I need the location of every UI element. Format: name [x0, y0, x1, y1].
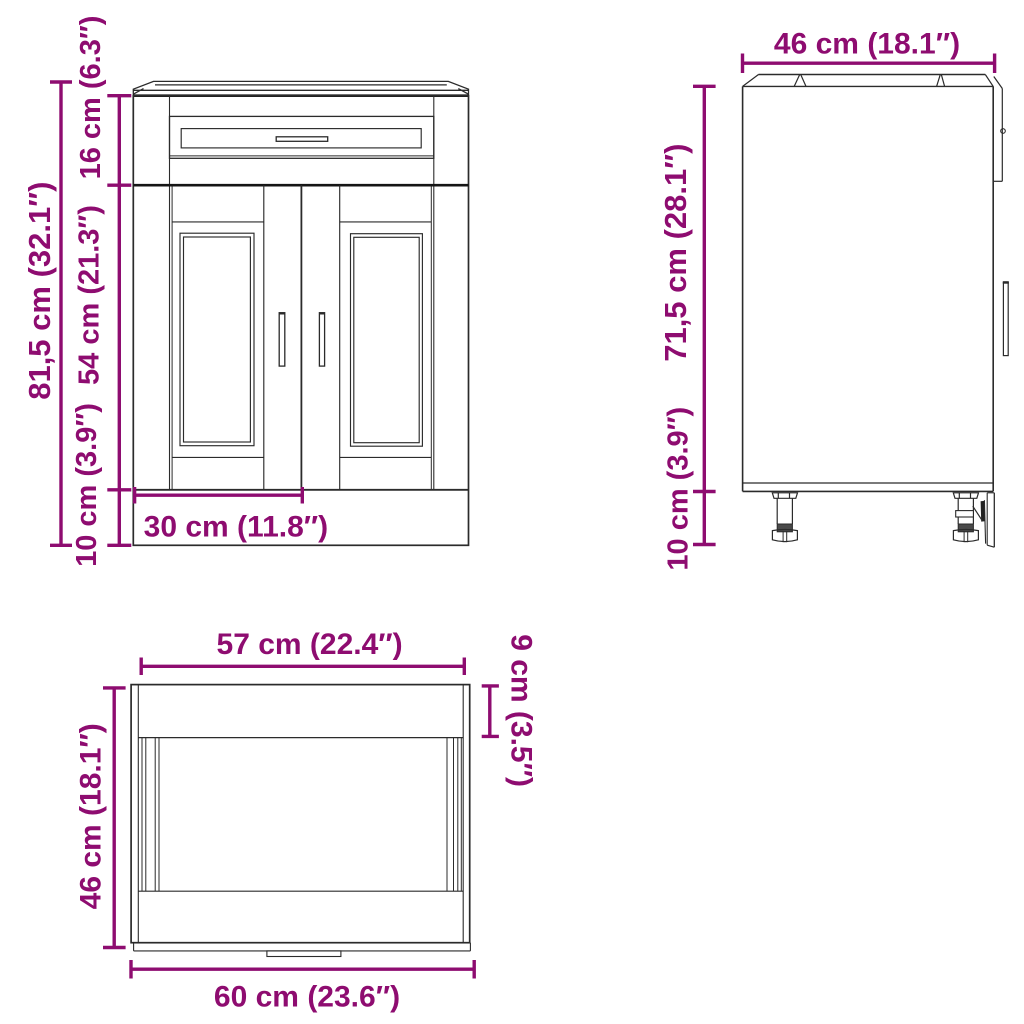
svg-text:46 cm (18.1″): 46 cm (18.1″) [75, 723, 108, 909]
svg-text:9 cm (3.5″): 9 cm (3.5″) [505, 634, 538, 787]
svg-text:57 cm (22.4″): 57 cm (22.4″) [217, 628, 403, 661]
svg-text:16 cm (6.3″): 16 cm (6.3″) [75, 16, 107, 180]
svg-text:46 cm (18.1″): 46 cm (18.1″) [774, 28, 960, 61]
svg-text:71,5 cm (28.1″): 71,5 cm (28.1″) [658, 144, 693, 362]
svg-text:60 cm (23.6″): 60 cm (23.6″) [214, 981, 400, 1014]
svg-text:10 cm (3.9″): 10 cm (3.9″) [71, 403, 103, 567]
svg-text:54 cm (21.3″): 54 cm (21.3″) [74, 205, 106, 385]
svg-text:10 cm (3.9″): 10 cm (3.9″) [663, 407, 695, 571]
svg-text:30 cm (11.8″): 30 cm (11.8″) [144, 511, 328, 544]
svg-text:81,5 cm (32.1″): 81,5 cm (32.1″) [22, 182, 57, 400]
